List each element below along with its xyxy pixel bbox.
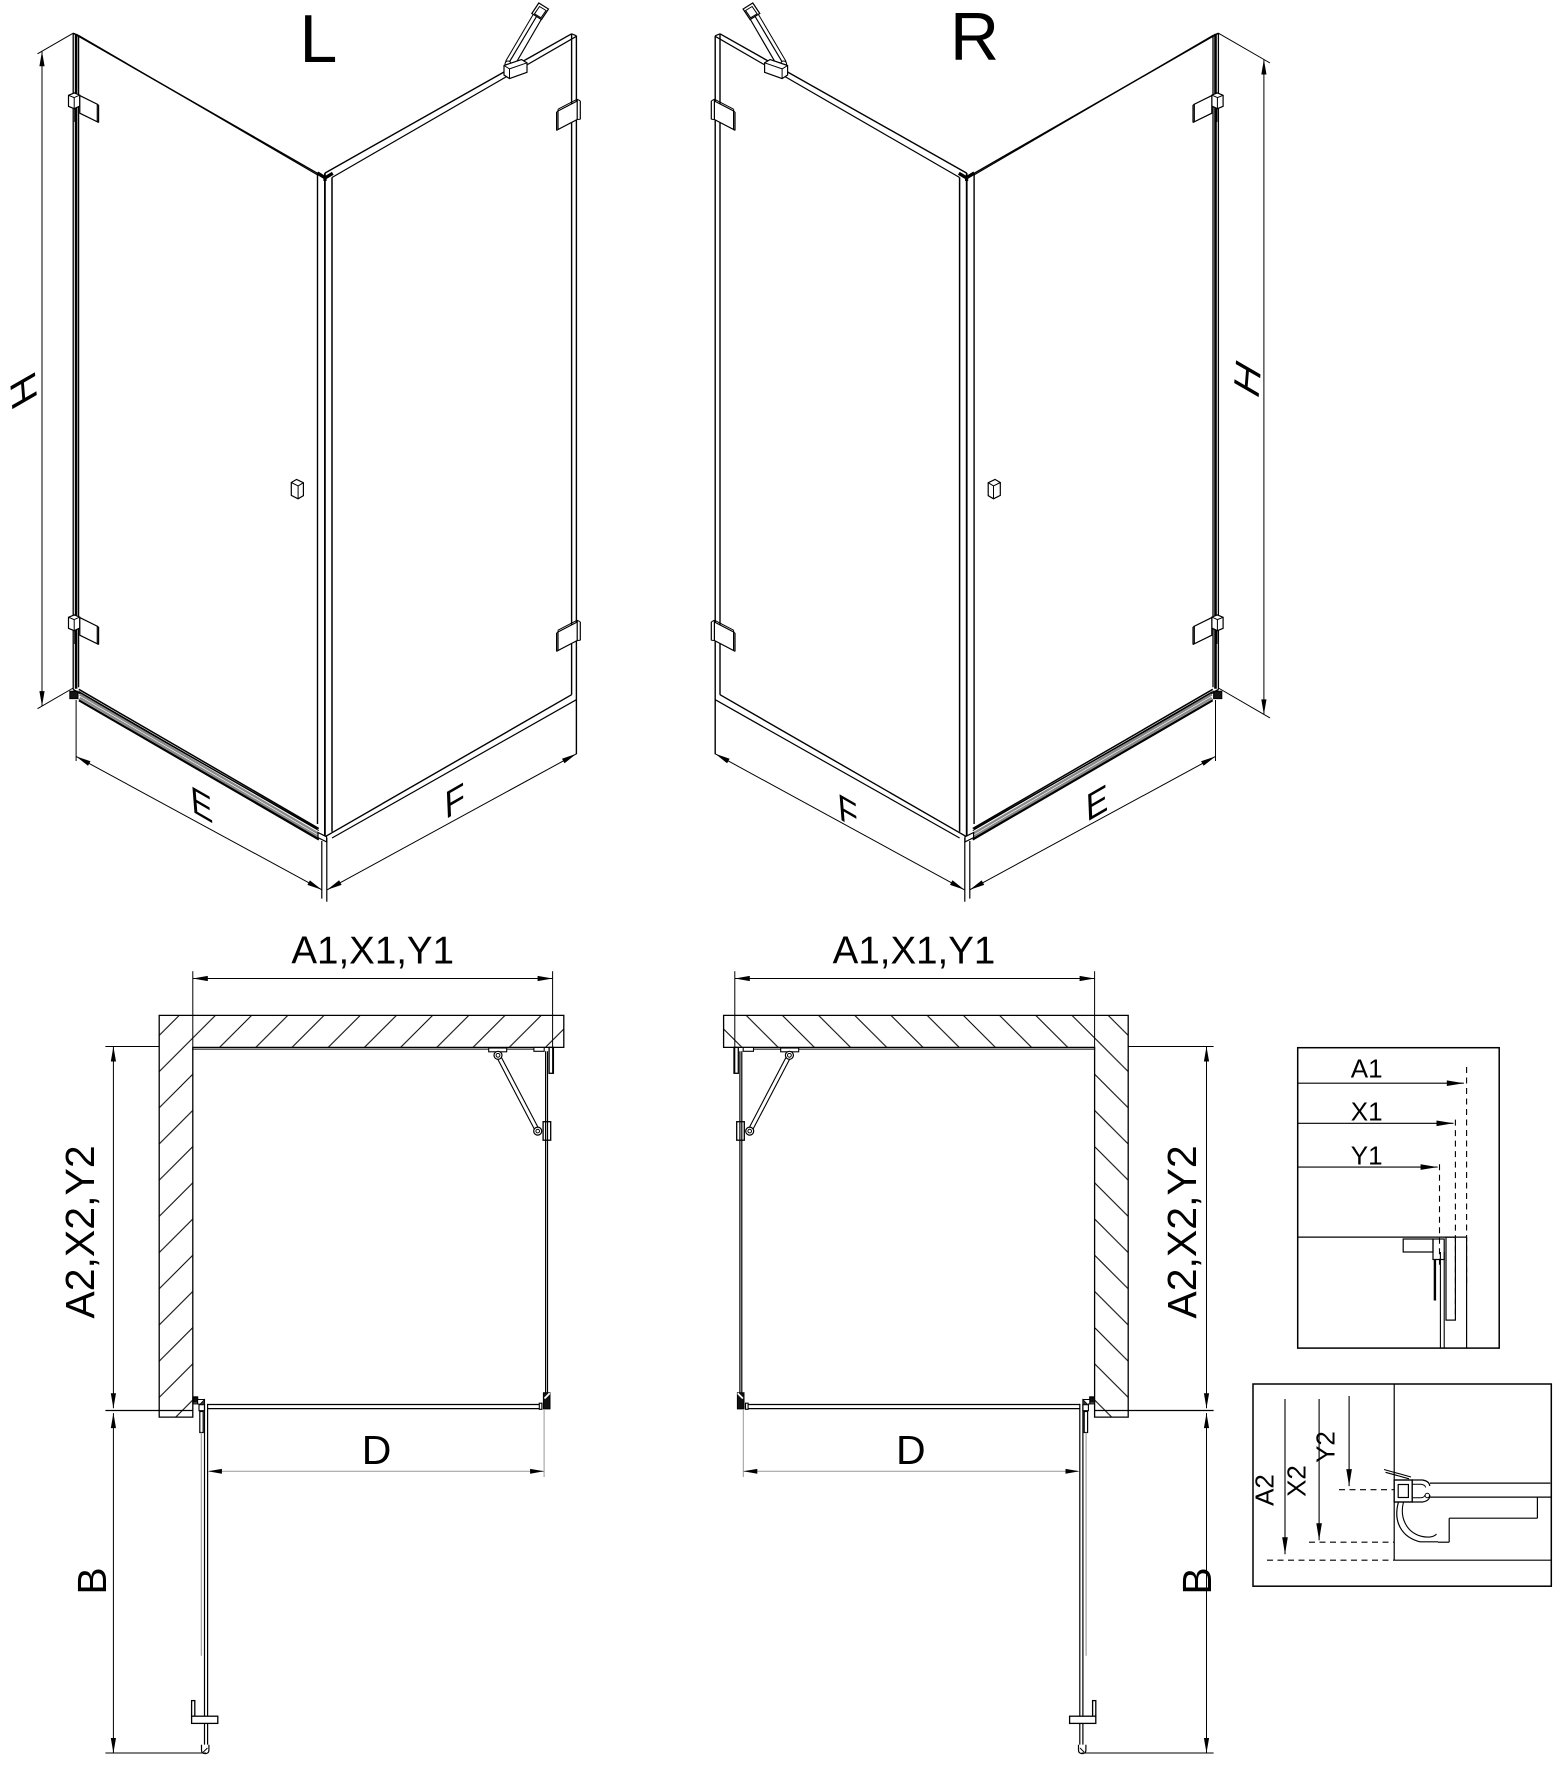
svg-text:A1,X1,Y1: A1,X1,Y1 (291, 930, 454, 973)
svg-text:A1,X1,Y1: A1,X1,Y1 (833, 930, 996, 973)
svg-text:Y2: Y2 (1311, 1431, 1341, 1463)
svg-text:A2,X2,Y2: A2,X2,Y2 (57, 1145, 103, 1318)
svg-text:R: R (950, 0, 999, 75)
svg-text:L: L (300, 1, 338, 77)
svg-text:A2,X2,Y2: A2,X2,Y2 (1159, 1145, 1205, 1318)
svg-text:X1: X1 (1351, 1097, 1383, 1127)
svg-text:A1: A1 (1351, 1054, 1383, 1084)
svg-text:X2: X2 (1282, 1465, 1312, 1497)
svg-text:B: B (1174, 1567, 1220, 1594)
svg-text:Y1: Y1 (1351, 1140, 1383, 1170)
svg-text:A2: A2 (1250, 1474, 1280, 1506)
svg-text:D: D (896, 1427, 926, 1473)
svg-text:B: B (69, 1567, 115, 1594)
svg-text:D: D (362, 1427, 392, 1473)
